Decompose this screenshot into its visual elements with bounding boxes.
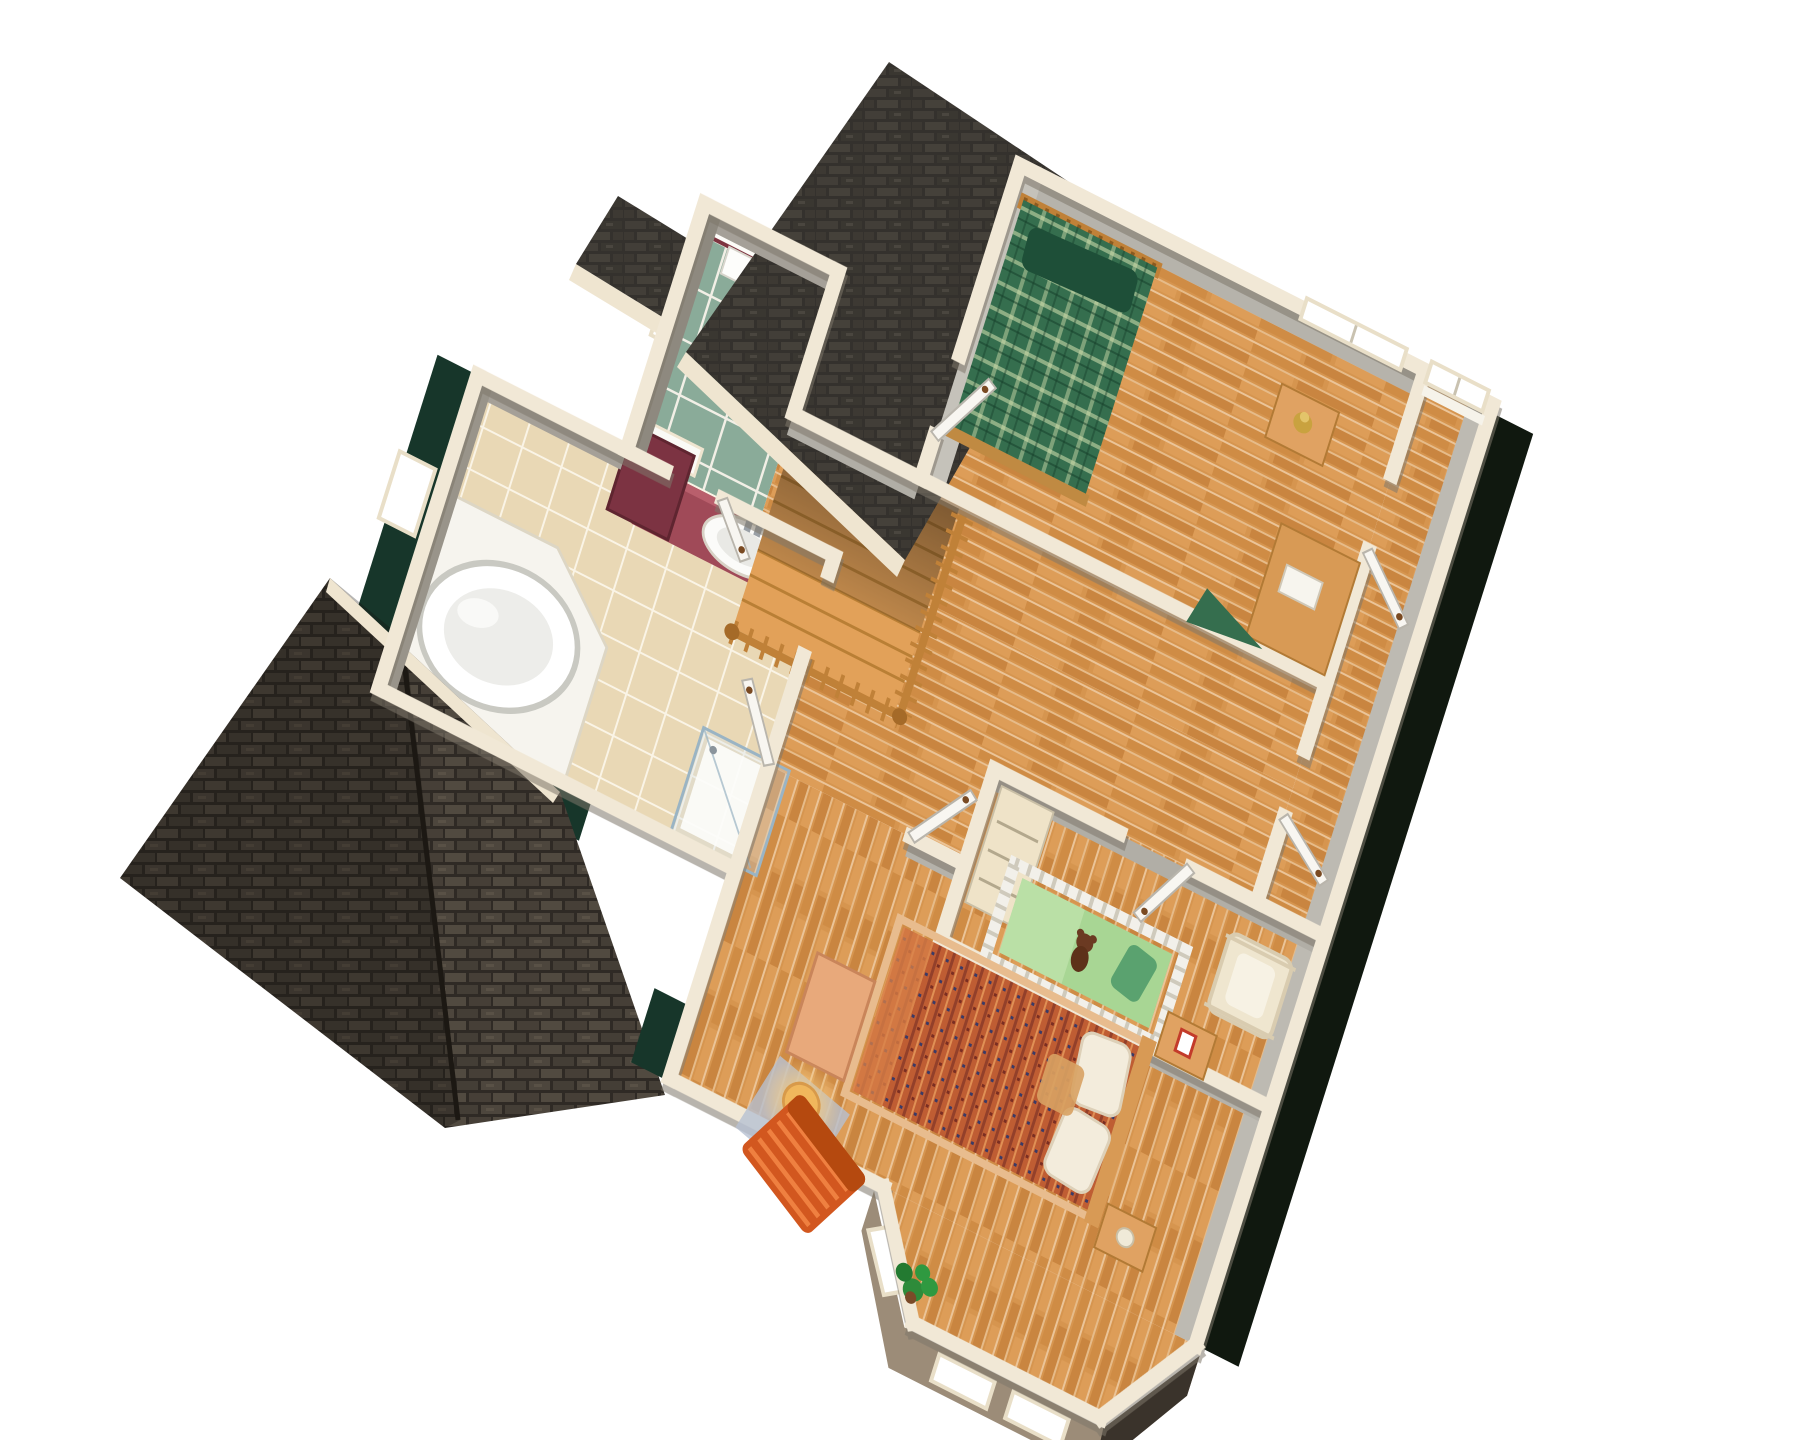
floor-plan-render bbox=[0, 0, 1800, 1440]
floor-plan-svg bbox=[0, 0, 1800, 1440]
